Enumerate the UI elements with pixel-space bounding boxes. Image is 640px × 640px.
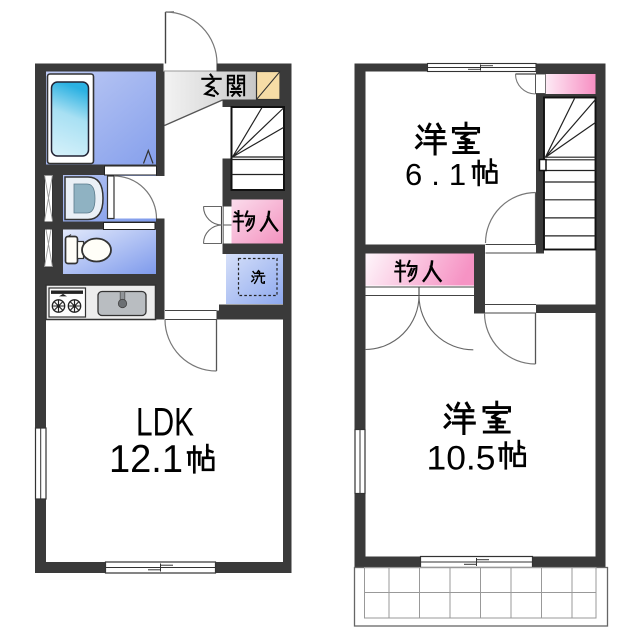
- svg-text:12.1: 12.1: [109, 438, 183, 481]
- svg-text:6.1: 6.1: [405, 157, 475, 192]
- svg-text:10.5: 10.5: [427, 440, 496, 478]
